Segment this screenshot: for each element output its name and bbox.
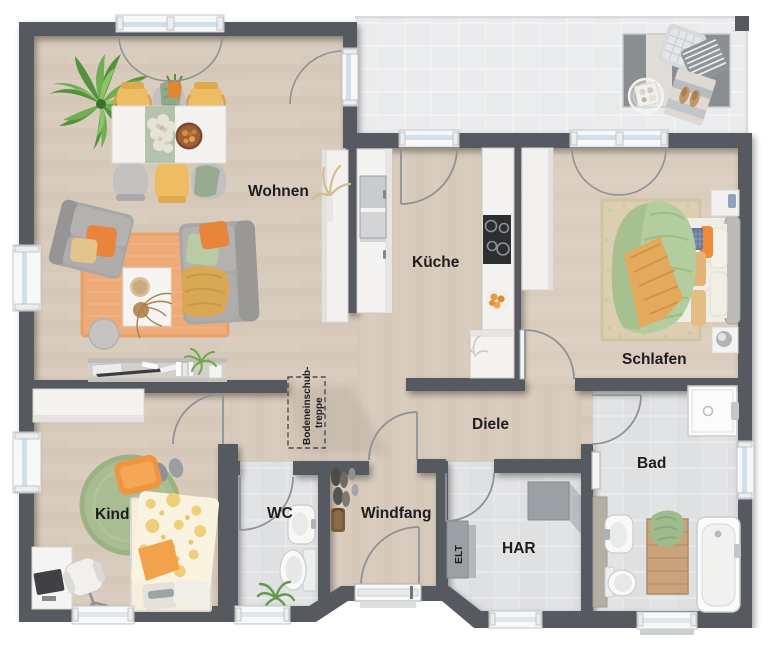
svg-text:WC: WC xyxy=(267,505,293,522)
svg-text:Diele: Diele xyxy=(472,416,509,433)
svg-text:ELT: ELT xyxy=(453,544,465,564)
svg-text:Wohnen: Wohnen xyxy=(248,183,309,200)
svg-text:HAR: HAR xyxy=(502,540,536,557)
svg-text:Windfang: Windfang xyxy=(361,505,431,522)
svg-text:treppe: treppe xyxy=(314,397,325,428)
svg-text:Kind: Kind xyxy=(95,506,129,523)
svg-text:Bodeneinschub-: Bodeneinschub- xyxy=(302,367,313,445)
svg-text:Bad: Bad xyxy=(637,455,666,472)
svg-text:Küche: Küche xyxy=(412,254,460,271)
svg-text:Schlafen: Schlafen xyxy=(622,351,687,368)
